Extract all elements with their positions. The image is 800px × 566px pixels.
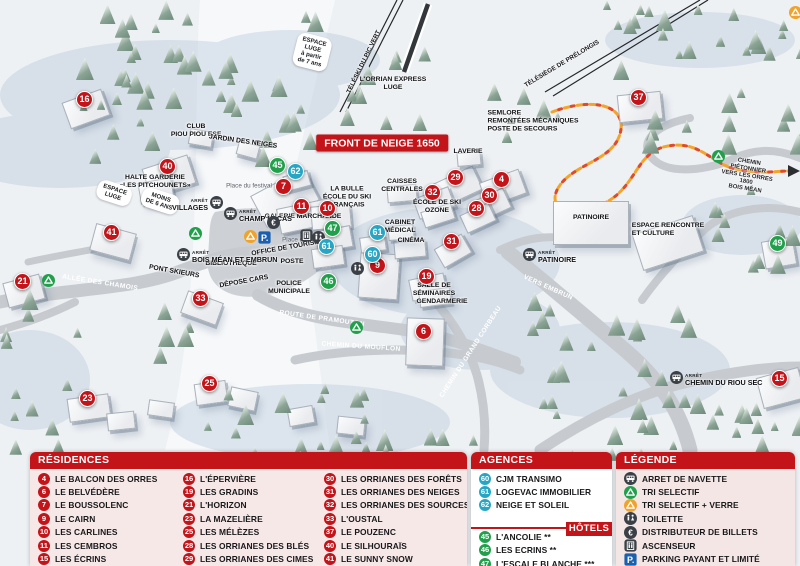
wc-icon — [624, 512, 637, 525]
euro-icon: € — [267, 216, 280, 229]
marker-badge: 29 — [183, 553, 195, 565]
residence-item-label: LES CEMBROS — [55, 541, 118, 551]
map-label: CABINET MÉDICAL — [385, 219, 416, 235]
marker-badge: 32 — [324, 499, 336, 511]
map-marker-47: 47 — [324, 220, 341, 237]
recycle-glass-icon — [624, 499, 637, 512]
legend-header: LÉGENDE — [616, 452, 795, 469]
marker-badge: 21 — [183, 499, 195, 511]
residence-item-label: LES CARLINES — [55, 527, 118, 537]
map-label: SALLE DE SÉMINAIRES — [413, 282, 455, 298]
residence-item: 31LES ORRIANES DES NEIGES — [316, 485, 467, 498]
marker-badge: 30 — [324, 473, 336, 485]
residence-item-label: LES ORRIANES DES SOURCES — [341, 500, 467, 510]
marker-badge: 47 — [479, 558, 491, 566]
agency-item: 61LOGEVAC IMMOBILIER — [471, 485, 612, 498]
map-label: Place du festival — [226, 182, 272, 189]
residence-item-label: LE BOUSSOLENC — [55, 500, 128, 510]
map-marker-15: 15 — [771, 370, 788, 387]
map-label: CHEMIN DU GRAND CORBEAU — [438, 305, 503, 399]
legend-item-label: DISTRIBUTEUR DE BILLETS — [642, 527, 758, 537]
map-marker-49: 49 — [769, 235, 786, 252]
marker-badge: 33 — [324, 513, 336, 525]
marker-badge: 28 — [183, 540, 195, 552]
residence-item: 10LES CARLINES — [30, 526, 175, 539]
map-marker-41: 41 — [103, 224, 120, 241]
bus-stop-icon — [523, 248, 536, 266]
residence-item-label: LES ÉCRINS — [55, 554, 106, 564]
map-label: CHEMIN PIÉTONNIER VERS LES ORRES 1800 BO… — [718, 155, 776, 197]
residence-item-label: LES MÉLÈZES — [200, 527, 259, 537]
marker-badge: 6 — [38, 486, 50, 498]
bus-stop-villages: ARRÊTVILLAGES — [172, 196, 223, 214]
recycle-green-icon — [42, 274, 55, 287]
marker-badge: 15 — [38, 553, 50, 565]
bus-stop-patinoire: ARRÊTPATINOIRE — [523, 248, 576, 266]
legend-item: TOILETTE — [616, 512, 795, 525]
residence-item-label: LA MAZELIÈRE — [200, 514, 263, 524]
map-marker-6: 6 — [415, 323, 432, 340]
bus-stop-champ-lacas: ARRÊTCHAMP LACAS — [224, 207, 292, 225]
map-label: GENDARMERIE — [417, 298, 468, 306]
residence-item-label: LE BALCON DES ORRES — [55, 474, 157, 484]
map-label: PATINOIRE — [573, 214, 609, 222]
map-marker-10: 10 — [319, 200, 336, 217]
marker-badge: 31 — [324, 486, 336, 498]
marker-badge: 23 — [183, 513, 195, 525]
residence-item-label: LES ORRIANES DES BLÉS — [200, 541, 309, 551]
map-marker-37: 37 — [630, 89, 647, 106]
map-marker-46: 46 — [320, 273, 337, 290]
residence-item-label: LES ORRIANES DES NEIGES — [341, 487, 460, 497]
residence-item: 30LES ORRIANES DES FORÊTS — [316, 472, 467, 485]
svg-text:€: € — [628, 528, 633, 537]
legend-item: TRI SELECTIF + VERRE — [616, 499, 795, 512]
residence-item: 37LE POUZENC — [316, 526, 467, 539]
bus-stop-icon — [177, 248, 190, 266]
bus-stop-text: ARRÊTCHAMP LACAS — [239, 210, 292, 222]
hotels-divider — [471, 527, 568, 529]
marker-badge: 11 — [38, 540, 50, 552]
recycle-green-icon — [712, 150, 725, 163]
map-label: ESPACE LUGE à partir de 7 ans — [291, 31, 333, 72]
bus-stop-icon — [670, 371, 683, 389]
bus-icon — [624, 472, 637, 485]
residence-item: 11LES CEMBROS — [30, 539, 175, 552]
residence-item: 23LA MAZELIÈRE — [175, 512, 316, 525]
residence-item-label: LES ORRIANES DES CIMES — [200, 554, 313, 564]
legend-item-label: TRI SELECTIF + VERRE — [642, 500, 739, 510]
recycle-green-icon — [350, 321, 363, 334]
map-marker-60: 60 — [364, 246, 381, 263]
map-marker-45: 45 — [269, 157, 286, 174]
map-marker-23: 23 — [79, 390, 96, 407]
bus-stop-name: CHAMP LACAS — [239, 215, 292, 222]
elevator-icon — [624, 539, 637, 552]
residence-item-label: LE BELVÉDÈRE — [55, 487, 120, 497]
map-marker-40: 40 — [159, 158, 176, 175]
bus-stop-name: VILLAGES — [172, 204, 208, 211]
agencies-header: AGENCES IMMOBILIÈRES — [471, 452, 612, 469]
map-label: CHEMIN DU MOUFLON — [321, 340, 401, 353]
bus-stop-text: ARRÊTPATINOIRE — [538, 251, 576, 263]
legend-panel: LÉGENDE ARRET DE NAVETTETRI SELECTIFTRI … — [616, 452, 795, 566]
residence-item: 19LES GRADINS — [175, 485, 316, 498]
residence-item-label: LE SILHOURAÏS — [341, 541, 407, 551]
map-label: DÉPOSE CARS — [219, 274, 269, 290]
hotel-item-label: L'ESCALE BLANCHE *** — [496, 559, 594, 566]
legend-item: P.PARKING PAYANT ET LIMITÉ — [616, 552, 795, 565]
map-marker-25: 25 — [201, 375, 218, 392]
legend-item: €DISTRIBUTEUR DE BILLETS — [616, 526, 795, 539]
legend-item-label: ASCENSEUR — [642, 541, 696, 551]
resort-map-poster: 1640412133232571110919629323143028371562… — [0, 0, 800, 566]
residence-item: 40LE SILHOURAÏS — [316, 539, 467, 552]
legend-item: ASCENSEUR — [616, 539, 795, 552]
map-marker-31: 31 — [443, 233, 460, 250]
map-marker-4: 4 — [493, 171, 510, 188]
residence-item: 41LE SUNNY SNOW — [316, 552, 467, 565]
residence-item: 25LES MÉLÈZES — [175, 526, 316, 539]
euro-icon: € — [624, 526, 637, 539]
legend-item-label: TRI SELECTIF — [642, 487, 700, 497]
bus-stop-bois-m-an-et-embrun: ARRÊTBOIS MÉAN ET EMBRUN — [177, 248, 277, 266]
map-marker-61: 61 — [369, 224, 386, 241]
map-label: PONT SKIEURS — [148, 264, 200, 281]
map-label: SEMLORE REMONTÉES MÉCANIQUES POSTE DE SE… — [487, 109, 578, 132]
map-label: JARDIN DES NEIGES — [208, 133, 277, 150]
agencies-hotels-panel: AGENCES IMMOBILIÈRES 60CJM TRANSIMO61LOG… — [471, 452, 612, 566]
residence-item-label: L'ÉPERVIÈRE — [200, 474, 256, 484]
parking-icon: P. — [258, 231, 271, 244]
residence-item: 33L'OUSTAL — [316, 512, 467, 525]
hotel-item-label: LES ECRINS ** — [496, 545, 556, 555]
residence-item: 15LES ÉCRINS — [30, 552, 175, 565]
residence-item-label: L'HORIZON — [200, 500, 247, 510]
marker-badge: 9 — [38, 513, 50, 525]
map-label: TÉLÉSIÈGE DE PRÉLONGIS — [523, 39, 600, 90]
map-label: FRONT DE NEIGE 1650 — [316, 134, 448, 151]
wc-icon — [351, 262, 364, 275]
bus-stop-text: ARRÊTCHEMIN DU RIOU SEC — [685, 374, 762, 386]
residence-item: 9LE CAIRN — [30, 512, 175, 525]
marker-badge: 16 — [183, 473, 195, 485]
marker-badge: 40 — [324, 540, 336, 552]
residence-item: 7LE BOUSSOLENC — [30, 499, 175, 512]
agency-item-label: LOGEVAC IMMOBILIER — [496, 487, 591, 497]
map-marker-16: 16 — [76, 91, 93, 108]
hotel-item: 47L'ESCALE BLANCHE *** — [471, 557, 612, 566]
agency-item: 62NEIGE ET SOLEIL — [471, 499, 612, 512]
map-label: ÉCOLE DE SKI OZONE — [413, 199, 461, 215]
map-marker-62: 62 — [287, 163, 304, 180]
map-marker-28: 28 — [468, 200, 485, 217]
residence-item-label: L'OUSTAL — [341, 514, 383, 524]
marker-badge: 37 — [324, 526, 336, 538]
hotel-item: 46LES ECRINS ** — [471, 544, 612, 557]
marker-badge: 19 — [183, 486, 195, 498]
marker-badge: 25 — [183, 526, 195, 538]
recycle-green-icon — [189, 227, 202, 240]
svg-text:P.: P. — [627, 554, 634, 564]
map-marker-21: 21 — [14, 273, 31, 290]
agency-item-label: CJM TRANSIMO — [496, 474, 562, 484]
bus-stop-icon — [210, 196, 223, 214]
marker-badge: 45 — [479, 531, 491, 543]
map-label: HALTE GARDERIE «LES PITCHOUNETS» — [119, 174, 190, 190]
map-label: POLICE MUNICIPALE — [268, 280, 310, 296]
residence-item-label: LES GRADINS — [200, 487, 258, 497]
recycle-green-icon — [624, 486, 637, 499]
svg-text:€: € — [271, 218, 276, 227]
map-marker-19: 19 — [418, 268, 435, 285]
residence-item: 4LE BALCON DES ORRES — [30, 472, 175, 485]
residence-item: 16L'ÉPERVIÈRE — [175, 472, 316, 485]
agency-item: 60CJM TRANSIMO — [471, 472, 612, 485]
svg-text:P.: P. — [261, 232, 268, 242]
map-marker-61: 61 — [318, 238, 335, 255]
residence-item: 32LES ORRIANES DES SOURCES — [316, 499, 467, 512]
legend-item-label: ARRET DE NAVETTE — [642, 474, 727, 484]
map-label: CAISSES CENTRALES — [381, 178, 423, 194]
recycle-glass-icon — [244, 230, 257, 243]
map-marker-7: 7 — [275, 178, 292, 195]
map-label: ALLÉE DES CHAMOIS — [61, 273, 138, 292]
recycle-glass-icon — [789, 6, 800, 19]
map-marker-32: 32 — [424, 184, 441, 201]
bus-stop-name: PATINOIRE — [538, 256, 576, 263]
bus-stop-name: CHEMIN DU RIOU SEC — [685, 379, 762, 386]
map-marker-11: 11 — [293, 198, 310, 215]
marker-badge: 46 — [479, 544, 491, 556]
residence-item: 28LES ORRIANES DES BLÉS — [175, 539, 316, 552]
bus-stop-icon — [224, 207, 237, 225]
residence-item-label: LE POUZENC — [341, 527, 396, 537]
marker-badge: 61 — [479, 486, 491, 498]
map-label: ESPACE RENCONTRE ET CULTURE — [632, 222, 704, 238]
marker-badge: 60 — [479, 473, 491, 485]
marker-badge: 7 — [38, 499, 50, 511]
map-label: CINÉMA — [398, 237, 425, 245]
map-marker-33: 33 — [192, 290, 209, 307]
marker-badge: 10 — [38, 526, 50, 538]
map-label: VERS EMBRUN — [522, 274, 574, 303]
marker-badge: 62 — [479, 499, 491, 511]
hotels-header: HÔTELS — [566, 522, 612, 536]
map-label: LAVERIE — [454, 148, 483, 156]
legend-item: TRI SELECTIF — [616, 485, 795, 498]
map-marker-30: 30 — [481, 187, 498, 204]
map-label: L'ORRIAN EXPRESS LUGE — [360, 76, 427, 92]
residence-item-label: LE SUNNY SNOW — [341, 554, 413, 564]
residence-item-label: LES ORRIANES DES FORÊTS — [341, 474, 462, 484]
residence-item: 6LE BELVÉDÈRE — [30, 485, 175, 498]
bus-stop-chemin-du-riou-sec: ARRÊTCHEMIN DU RIOU SEC — [670, 371, 762, 389]
residence-item: 29LES ORRIANES DES CIMES — [175, 552, 316, 565]
parking-icon: P. — [624, 553, 637, 566]
agency-item-label: NEIGE ET SOLEIL — [496, 500, 569, 510]
marker-badge: 4 — [38, 473, 50, 485]
hotel-item-label: L'ANCOLIE ** — [496, 532, 551, 542]
residence-item: 21L'HORIZON — [175, 499, 316, 512]
bus-stop-name: BOIS MÉAN ET EMBRUN — [192, 256, 277, 263]
map-label: POSTE — [280, 258, 303, 266]
legend-item-label: TOILETTE — [642, 514, 683, 524]
map-annotations: 1640412133232571110919629323143028371562… — [0, 0, 800, 450]
bus-stop-text: ARRÊTBOIS MÉAN ET EMBRUN — [192, 251, 277, 263]
bus-stop-text: ARRÊTVILLAGES — [172, 199, 208, 211]
legend-item: ARRET DE NAVETTE — [616, 472, 795, 485]
marker-badge: 41 — [324, 553, 336, 565]
residence-item-label: LE CAIRN — [55, 514, 95, 524]
residences-header: RÉSIDENCES — [30, 452, 467, 469]
map-marker-29: 29 — [447, 169, 464, 186]
residences-panel: RÉSIDENCES 4LE BALCON DES ORRES6LE BELVÉ… — [30, 452, 467, 566]
legend-item-label: PARKING PAYANT ET LIMITÉ — [642, 554, 760, 564]
